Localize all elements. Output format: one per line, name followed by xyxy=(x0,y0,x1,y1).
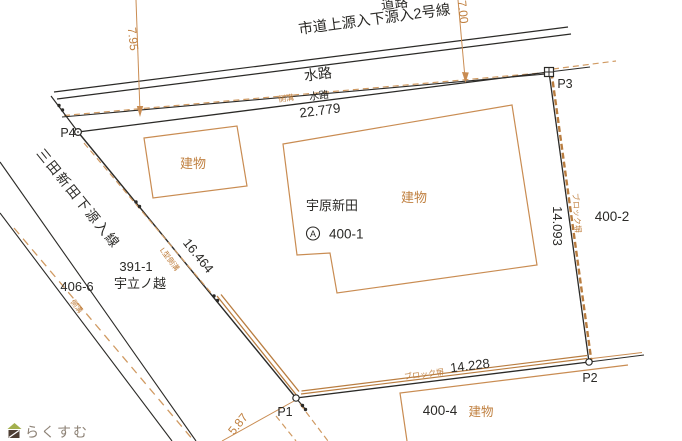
main-parcel-number: 400-1 xyxy=(329,227,364,242)
dim-arrowhead-795 xyxy=(137,106,143,117)
west-gutter-label: L型側溝 xyxy=(158,245,182,273)
p4-marker-dot xyxy=(77,131,79,133)
p3-marker-icon xyxy=(545,68,554,77)
west-road-name-label: 三田新田下源入線 xyxy=(34,146,124,252)
p3-label: P3 xyxy=(557,77,572,91)
building-main-label: 建物 xyxy=(401,190,427,205)
road-width-dimension-west: 7.95 xyxy=(125,27,141,52)
west-block-wall-line-2 xyxy=(221,295,299,392)
tick-mark xyxy=(134,200,137,203)
west-road-edge-line-east xyxy=(0,162,196,441)
p1-marker-icon xyxy=(293,395,299,401)
tick-mark xyxy=(61,108,64,111)
main-parcel-mark-letter: A xyxy=(310,229,316,239)
parcel-400-4-label: 400-4 xyxy=(423,403,458,418)
road-width-dimension-east: 7.00 xyxy=(455,0,471,25)
west-road-gutter-label: 側溝 xyxy=(68,297,85,315)
southwest-dashed-2 xyxy=(276,416,296,441)
tick-mark xyxy=(138,205,141,208)
south-block-wall-line-2 xyxy=(302,356,588,392)
parcel-400-2-label: 400-2 xyxy=(595,209,630,224)
rakusumu-logo: らくすむ xyxy=(8,423,90,440)
waterway-label-small: 水路 xyxy=(308,88,330,103)
east-boundary-dimension: 14.093 xyxy=(550,206,565,246)
south-boundary-dimension: 14.228 xyxy=(449,356,490,376)
p1-label: P1 xyxy=(277,405,292,419)
main-parcel-mark-icon: A xyxy=(307,227,320,240)
p4-label: P4 xyxy=(60,126,75,140)
tick-mark xyxy=(301,404,304,407)
north-boundary-extension xyxy=(549,67,590,72)
tick-mark xyxy=(304,408,307,411)
west-boundary-dimension: 16.464 xyxy=(180,236,217,276)
dim-line-795 xyxy=(136,0,140,112)
waterway-label-large: 水路 xyxy=(303,64,333,84)
tick-mark xyxy=(216,299,219,302)
parcel-406-6-label: 406-6 xyxy=(60,279,93,294)
tick-mark xyxy=(57,104,60,107)
survey-map-canvas: 道路 市道上源入下源入2号線 水路 側溝 水路 22.779 7.95 7.00… xyxy=(0,0,682,441)
tick-mark xyxy=(212,294,215,297)
gutter-label-north: 側溝 xyxy=(277,92,294,104)
main-parcel-name: 宇原新田 xyxy=(306,198,358,213)
rakusumu-logo-icon xyxy=(8,423,22,438)
west-road-edge-line-west xyxy=(0,213,172,441)
p2-label: P2 xyxy=(582,371,597,385)
parcel-391-1-label: 391-1 xyxy=(119,259,152,274)
p2-marker-icon xyxy=(586,359,592,365)
west-boundary-line xyxy=(78,132,296,398)
southwest-dimension: 5.87 xyxy=(225,410,251,437)
building-northwest-label: 建物 xyxy=(180,156,206,171)
cadastral-drawing: 道路 市道上源入下源入2号線 水路 側溝 水路 22.779 7.95 7.00… xyxy=(0,0,682,441)
parcel-391-1-name: 宇立ノ越 xyxy=(114,276,166,291)
west-block-wall-line-1 xyxy=(217,296,296,395)
south-wall-extension xyxy=(592,353,642,359)
road-name-label: 市道上源入下源入2号線 xyxy=(297,1,451,38)
rakusumu-logo-text: らくすむ xyxy=(25,424,89,440)
building-south-label: 建物 xyxy=(468,405,493,419)
